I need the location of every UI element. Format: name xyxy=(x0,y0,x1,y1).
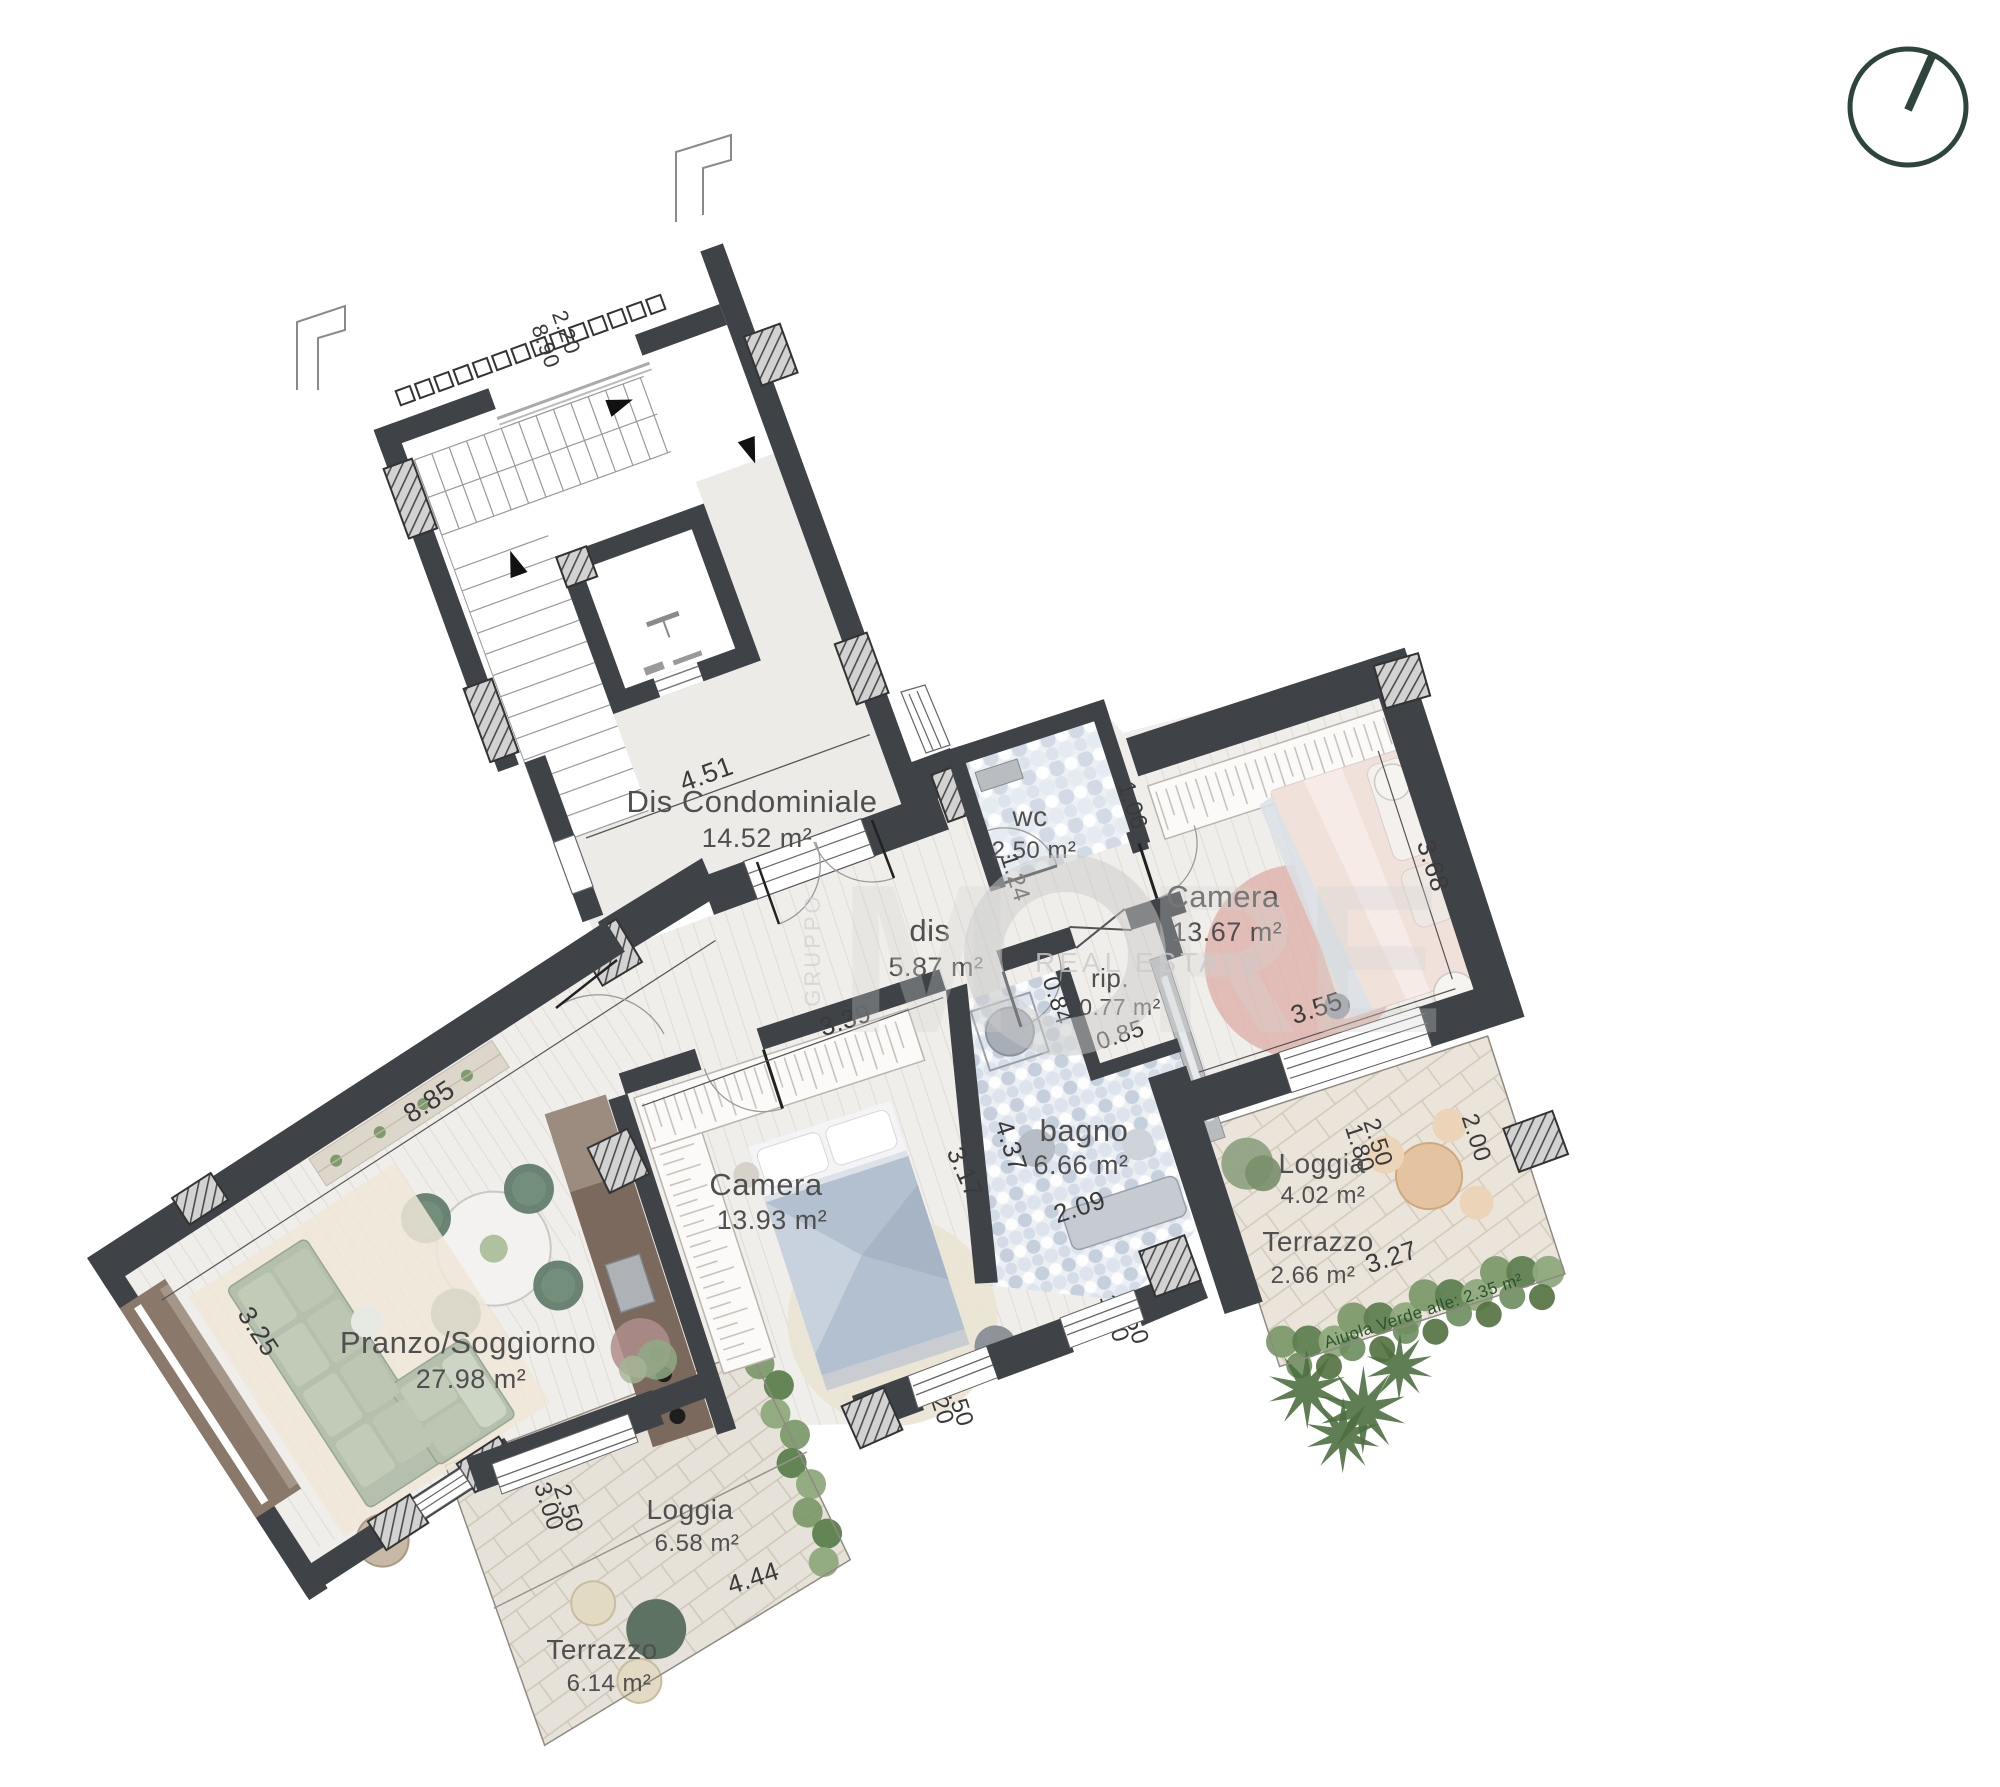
svg-text:Terrazzo: Terrazzo xyxy=(546,1634,657,1665)
svg-text:6.66 m²: 6.66 m² xyxy=(1033,1150,1128,1180)
svg-text:13.93 m²: 13.93 m² xyxy=(717,1205,828,1235)
svg-text:Terrazzo: Terrazzo xyxy=(1262,1226,1373,1257)
svg-text:6.14 m²: 6.14 m² xyxy=(567,1670,652,1697)
svg-text:wc: wc xyxy=(1011,801,1047,832)
svg-text:2.66 m²: 2.66 m² xyxy=(1271,1262,1356,1289)
svg-text:Loggia: Loggia xyxy=(1278,1148,1365,1179)
svg-text:Loggia: Loggia xyxy=(646,1494,733,1525)
svg-text:Pranzo/Soggiorno: Pranzo/Soggiorno xyxy=(340,1325,596,1360)
svg-text:bagno: bagno xyxy=(1040,1113,1129,1148)
svg-text:Camera: Camera xyxy=(709,1167,823,1202)
svg-text:14.52 m²: 14.52 m² xyxy=(702,823,813,853)
svg-text:4.02 m²: 4.02 m² xyxy=(1281,1182,1366,1209)
svg-text:6.58 m²: 6.58 m² xyxy=(655,1530,740,1557)
svg-text:27.98 m²: 27.98 m² xyxy=(416,1364,527,1394)
svg-text:Dis Condominiale: Dis Condominiale xyxy=(627,784,878,819)
svg-text:GRUPPO: GRUPPO xyxy=(800,893,825,1006)
svg-text:REAL ESTATE: REAL ESTATE xyxy=(1035,947,1264,978)
